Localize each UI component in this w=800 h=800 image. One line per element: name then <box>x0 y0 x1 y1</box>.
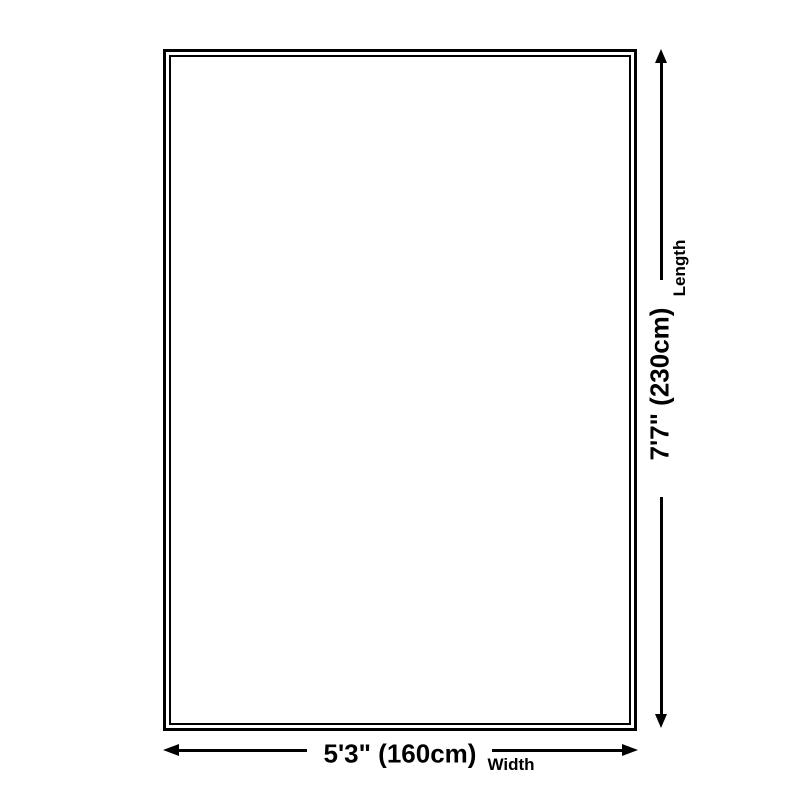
arrow-right-icon <box>622 744 638 756</box>
width-arrow-shaft-right <box>492 749 623 752</box>
rug-outline-inner <box>169 55 631 725</box>
length-caption-label: Length <box>670 240 690 297</box>
arrow-down-icon <box>655 714 667 728</box>
length-arrow-shaft-top <box>660 60 663 280</box>
width-caption-label: Width <box>487 755 534 775</box>
length-arrow-shaft-bottom <box>660 497 663 717</box>
width-value-label: 5'3" (160cm) <box>324 739 477 770</box>
width-arrow-shaft-left <box>177 749 307 752</box>
rug-outline-outer <box>163 49 637 731</box>
length-value-label: 7'7" (230cm) <box>645 308 676 461</box>
rug-dimension-diagram: 7'7" (230cm) Length 5'3" (160cm) Width <box>0 0 800 800</box>
